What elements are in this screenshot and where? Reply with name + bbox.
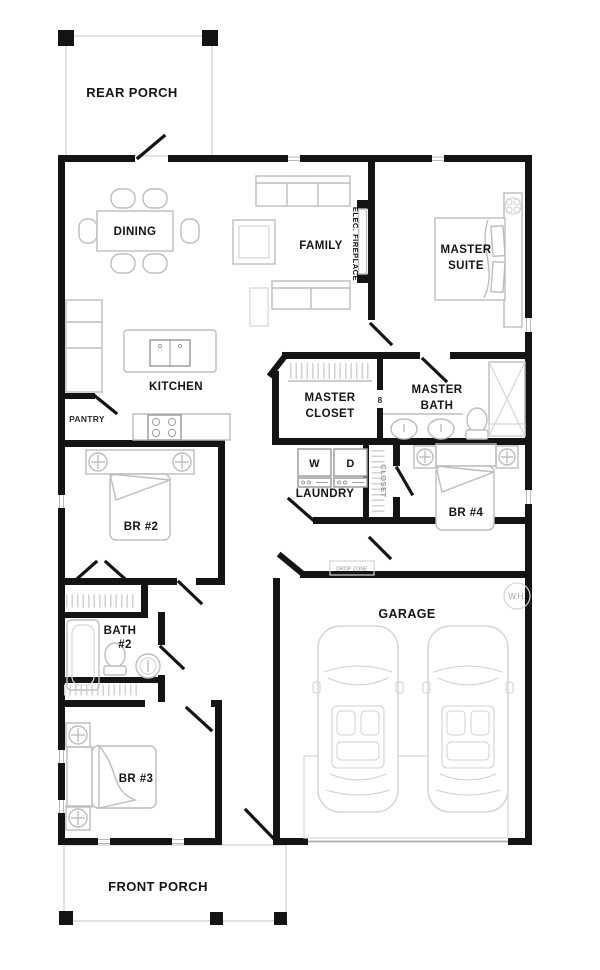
door-size-marker: 8 — [377, 395, 382, 405]
laundry-label: LAUNDRY — [296, 488, 355, 500]
bath2-door-leaf — [161, 647, 183, 668]
toilet-tank — [466, 430, 488, 439]
dryer-label: D — [346, 458, 354, 470]
stove — [148, 415, 181, 440]
hall-door-leaf — [370, 538, 390, 558]
dining-chair — [111, 254, 135, 273]
master-suite-door-leaf — [371, 324, 391, 344]
dining-chair — [111, 189, 135, 208]
laundry: W D LAUNDRY — [296, 449, 367, 500]
porch-post — [59, 911, 73, 925]
car — [423, 626, 513, 812]
rear-porch: REAR PORCH — [58, 30, 218, 156]
family-label: FAMILY — [299, 240, 343, 252]
car — [313, 626, 403, 812]
br3-door-leaf — [187, 708, 211, 730]
pillow — [491, 226, 505, 257]
master-suite: MASTER SUITE — [435, 193, 522, 327]
porch-post — [58, 30, 74, 46]
pantry-wall — [58, 393, 95, 399]
br4-door-leaf — [397, 468, 412, 494]
garage-label: GARAGE — [378, 607, 435, 621]
hall-closet: CLOSET — [378, 450, 388, 512]
dining-room: DINING — [79, 189, 199, 273]
bedroom3-label: BR #3 — [119, 773, 154, 785]
kitchen-label: KITCHEN — [149, 381, 203, 393]
master-suite-label-line2: SUITE — [448, 260, 484, 272]
laundry-door-leaf — [289, 499, 313, 520]
porch-post — [202, 30, 218, 46]
bath2-label-line1: BATH — [104, 625, 137, 637]
pantry-door-leaf — [95, 396, 116, 413]
garage-door — [308, 841, 508, 843]
dining-chair — [79, 219, 97, 243]
master-bath: MASTER BATH — [383, 362, 525, 439]
bathtub-basin — [72, 625, 94, 685]
headboard — [436, 444, 496, 466]
front-door-leaf — [246, 810, 275, 840]
master-bath-door-leaf — [423, 359, 446, 381]
sofa — [256, 176, 350, 206]
master-bath-label-line2: BATH — [421, 400, 454, 412]
closet-door-leaf — [78, 562, 96, 578]
pillow — [491, 262, 505, 293]
dining-chair — [181, 219, 199, 243]
end-table — [250, 288, 268, 326]
dining-chair — [143, 254, 167, 273]
dining-chair — [143, 189, 167, 208]
bedroom3: BR #3 — [66, 723, 156, 830]
dining-label: DINING — [114, 226, 157, 238]
toilet-tank — [104, 666, 126, 675]
armchair-cushion — [239, 226, 269, 258]
hall-closet-label: CLOSET — [379, 464, 388, 497]
garage: DROP ZONE W.H. GARAGE — [304, 561, 530, 838]
fireplace-label: ELEC. FIREPLACE — [351, 207, 360, 281]
bath2-label-line2: #2 — [118, 639, 132, 651]
headboard — [67, 747, 92, 807]
kitchen: KITCHEN PANTRY — [58, 300, 230, 440]
drop-zone-label: DROP ZONE — [336, 567, 368, 573]
master-suite-label-line1: MASTER — [441, 244, 492, 256]
rear-door-leaf — [138, 136, 164, 158]
porch-post — [274, 912, 287, 925]
pantry-label: PANTRY — [69, 414, 105, 424]
toilet — [467, 408, 487, 432]
master-closet-label-line1: MASTER — [305, 392, 356, 404]
front-porch: FRONT PORCH — [59, 845, 287, 925]
water-heater-label: W.H. — [508, 592, 525, 601]
front-porch-label: FRONT PORCH — [108, 879, 208, 894]
counter — [66, 300, 102, 392]
rear-porch-label: REAR PORCH — [86, 85, 177, 100]
angled-wall — [281, 556, 303, 574]
master-closet: MASTER CLOSET — [288, 371, 372, 420]
porch-post — [210, 912, 223, 925]
closet-door-leaf — [106, 562, 124, 578]
bedroom2-label: BR #2 — [124, 521, 159, 533]
family-room: FAMILY ELEC. FIREPLACE — [233, 176, 368, 326]
bedroom4-label: BR #4 — [449, 507, 484, 519]
floor-plan-page: REAR PORCH FRONT PORCH — [0, 0, 600, 970]
washer-label: W — [309, 458, 320, 470]
master-bath-label-line1: MASTER — [412, 384, 463, 396]
headboard-wall-unit — [504, 193, 522, 327]
floor-plan-drawing: REAR PORCH FRONT PORCH — [0, 0, 600, 970]
br2-door-leaf — [179, 582, 201, 603]
master-closet-label-line2: CLOSET — [305, 408, 354, 420]
